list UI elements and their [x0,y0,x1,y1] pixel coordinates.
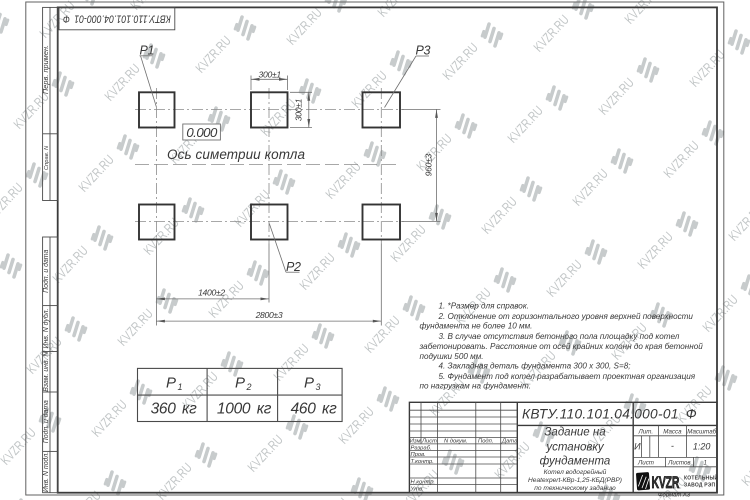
svg-text:960±3: 960±3 [423,154,433,177]
svg-text:КОТЕЛЬНЫЙ: КОТЕЛЬНЫЙ [684,474,719,482]
svg-text:KVZR.RU: KVZR.RU [530,12,572,55]
svg-text:460 кг: 460 кг [291,401,337,418]
svg-text:KVZR.RU: KVZR.RU [75,152,117,195]
svg-text:KVZR.RU: KVZR.RU [114,306,156,349]
svg-text:5. Фундамент под котел разраба: 5. Фундамент под котел разрабатывает про… [439,372,696,381]
svg-text:1:20: 1:20 [693,442,711,452]
svg-text:Ось симетрии котла: Ось симетрии котла [167,147,305,162]
svg-text:Инв. N дубл.: Инв. N дубл. [42,308,50,348]
svg-text:300±1: 300±1 [294,98,304,121]
svg-text:Котел водогрейный: Котел водогрейный [544,468,607,476]
svg-text:Подп. и дата: Подп. и дата [42,250,50,293]
svg-text:KVZR.RU: KVZR.RU [0,180,26,223]
svg-text:KVZR.RU: KVZR.RU [283,5,325,48]
svg-text:P2: P2 [235,375,252,393]
svg-text:KVZR.RU: KVZR.RU [634,229,676,272]
svg-text:KVZR.RU: KVZR.RU [153,460,195,500]
svg-text:P1: P1 [166,375,183,393]
svg-text:Масса: Масса [663,428,682,435]
svg-text:Дата: Дата [501,438,518,444]
svg-text:KVZR.RU: KVZR.RU [322,159,364,202]
svg-text:фундамента: фундамента [540,455,611,467]
svg-text:0.000: 0.000 [186,125,218,140]
svg-text:ЗАВОД РЭП: ЗАВОД РЭП [684,483,715,489]
svg-text:фундамента не более 10 мм.: фундамента не более 10 мм. [420,321,533,330]
svg-text:Взам. инв. N: Взам. инв. N [43,352,50,392]
svg-text:1000 кг: 1000 кг [217,401,272,418]
svg-text:300±1: 300±1 [259,70,282,80]
svg-text:KVZR.RU: KVZR.RU [244,432,286,475]
svg-text:360 кг: 360 кг [151,401,197,418]
svg-text:подушки 500 мм.: подушки 500 мм. [420,352,484,361]
svg-text:1: 1 [703,459,706,466]
svg-text:KVZR.RU: KVZR.RU [413,131,455,174]
svg-text:по техническому заданию: по техническому заданию [534,484,616,492]
svg-text:KVZR.RU: KVZR.RU [491,439,533,482]
svg-text:KVZR.RU: KVZR.RU [439,40,481,83]
svg-text:KVZR.RU: KVZR.RU [348,68,390,111]
svg-text:4. Закладная деталь фундамента: 4. Закладная деталь фундамента 300 x 300… [439,361,631,370]
svg-text:Подп. и дата: Подп. и дата [42,400,50,443]
svg-text:KVZR.RU: KVZR.RU [205,278,247,321]
svg-text:1400±2: 1400±2 [198,287,225,297]
svg-text:KVZR.RU: KVZR.RU [88,397,130,440]
svg-text:KVZR.RU: KVZR.RU [504,103,546,146]
svg-text:KVZR.RU: KVZR.RU [374,0,416,20]
svg-text:1. *Размер для справок.: 1. *Размер для справок. [439,301,529,310]
svg-text:KVZR.RU: KVZR.RU [361,313,403,356]
svg-text:KVZR.RU: KVZR.RU [725,201,750,244]
svg-text:Утв.: Утв. [410,487,424,493]
svg-text:KVZR.RU: KVZR.RU [296,250,338,293]
svg-text:P3: P3 [304,375,321,393]
svg-text:KVZR: KVZR [652,472,680,491]
svg-text:N докум.: N докум. [444,438,467,444]
svg-text:Разраб.: Разраб. [411,445,432,451]
svg-text:Подп.: Подп. [478,438,493,444]
svg-text:-: - [671,441,674,451]
svg-text:KVZR.RU: KVZR.RU [699,292,741,335]
svg-text:Масштаб: Масштаб [687,428,716,435]
svg-text:Лист: Лист [421,438,437,444]
svg-text:KVZR.RU: KVZR.RU [686,47,728,90]
svg-text:Heatexpert-КВр-1,25-КБД(РВР): Heatexpert-КВр-1,25-КБД(РВР) [528,477,622,484]
svg-text:KVZR.RU: KVZR.RU [62,488,104,500]
svg-text:Справ. N: Справ. N [44,145,50,170]
svg-text:3. В случае отсутствия бетонно: 3. В случае отсутствия бетонного пола пл… [439,332,680,341]
svg-text:И: И [634,442,641,452]
svg-text:2800±3: 2800±3 [255,310,283,320]
svg-text:Задание на: Задание на [544,426,605,438]
svg-text:КВТУ.110.101.04.000-01 Ф: КВТУ.110.101.04.000-01 Ф [522,407,697,422]
svg-text:Лит.: Лит. [638,428,654,435]
svg-text:KVZR.RU: KVZR.RU [231,187,273,230]
svg-text:Перв. примен.: Перв. примен. [41,45,50,94]
svg-text:KVZR.RU: KVZR.RU [101,61,143,104]
svg-text:забетонировать. Расстояние от: забетонировать. Расстояние от осей крайн… [419,342,704,351]
svg-text:KVZR.RU: KVZR.RU [0,425,39,468]
svg-text:KVZR.RU: KVZR.RU [660,138,702,181]
svg-text:KVZR.RU: KVZR.RU [595,75,637,118]
svg-text:Инв. N подл.: Инв. N подл. [42,452,50,492]
svg-text:KVZR.RU: KVZR.RU [387,222,429,265]
svg-text:Изм.: Изм. [410,438,422,444]
svg-text:KVZR.RU: KVZR.RU [478,194,520,237]
svg-text:Пров.: Пров. [411,452,426,458]
svg-text:KVZR.RU: KVZR.RU [738,446,750,489]
svg-text:КВТУ.110.101.04.000-01 Ф: КВТУ.110.101.04.000-01 Ф [63,12,171,24]
svg-text:Т.контр.: Т.контр. [411,459,434,465]
svg-text:Листов: Листов [667,459,691,466]
svg-text:KVZR.RU: KVZR.RU [543,257,585,300]
svg-text:KVZR.RU: KVZR.RU [10,89,52,132]
svg-text:P3: P3 [416,44,431,58]
svg-text:Формат А3: Формат А3 [658,493,691,499]
svg-text:по нагрузкам на фундамент.: по нагрузкам на фундамент. [420,381,531,390]
svg-text:KVZR.RU: KVZR.RU [569,166,611,209]
svg-text:Н.контр.: Н.контр. [411,480,436,486]
svg-text:KVZR.RU: KVZR.RU [49,243,91,286]
svg-text:KVZR.RU: KVZR.RU [192,33,234,76]
svg-text:установку: установку [545,441,605,453]
svg-text:Лист: Лист [637,459,654,466]
svg-text:KVZR.RU: KVZR.RU [621,0,663,27]
svg-text:2. Отклонение от горизонтально: 2. Отклонение от горизонтального уровня … [438,312,694,321]
